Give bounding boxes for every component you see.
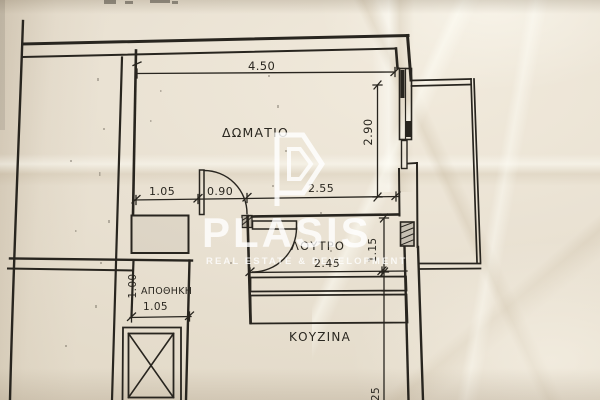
watermark-brand: PLASIS bbox=[202, 209, 372, 257]
watermark-tagline: REAL ESTATE & DEVELOPMENT bbox=[206, 256, 407, 267]
floor-plan-photo: ΔΩΜΑΤΙΟ ΛΟΥΤΡΟ ΑΠΟΘΗΚΗ ΚΟΥΖΙΝΑ 4.50 2.90… bbox=[0, 0, 600, 400]
watermark-logo-icon bbox=[0, 0, 600, 400]
